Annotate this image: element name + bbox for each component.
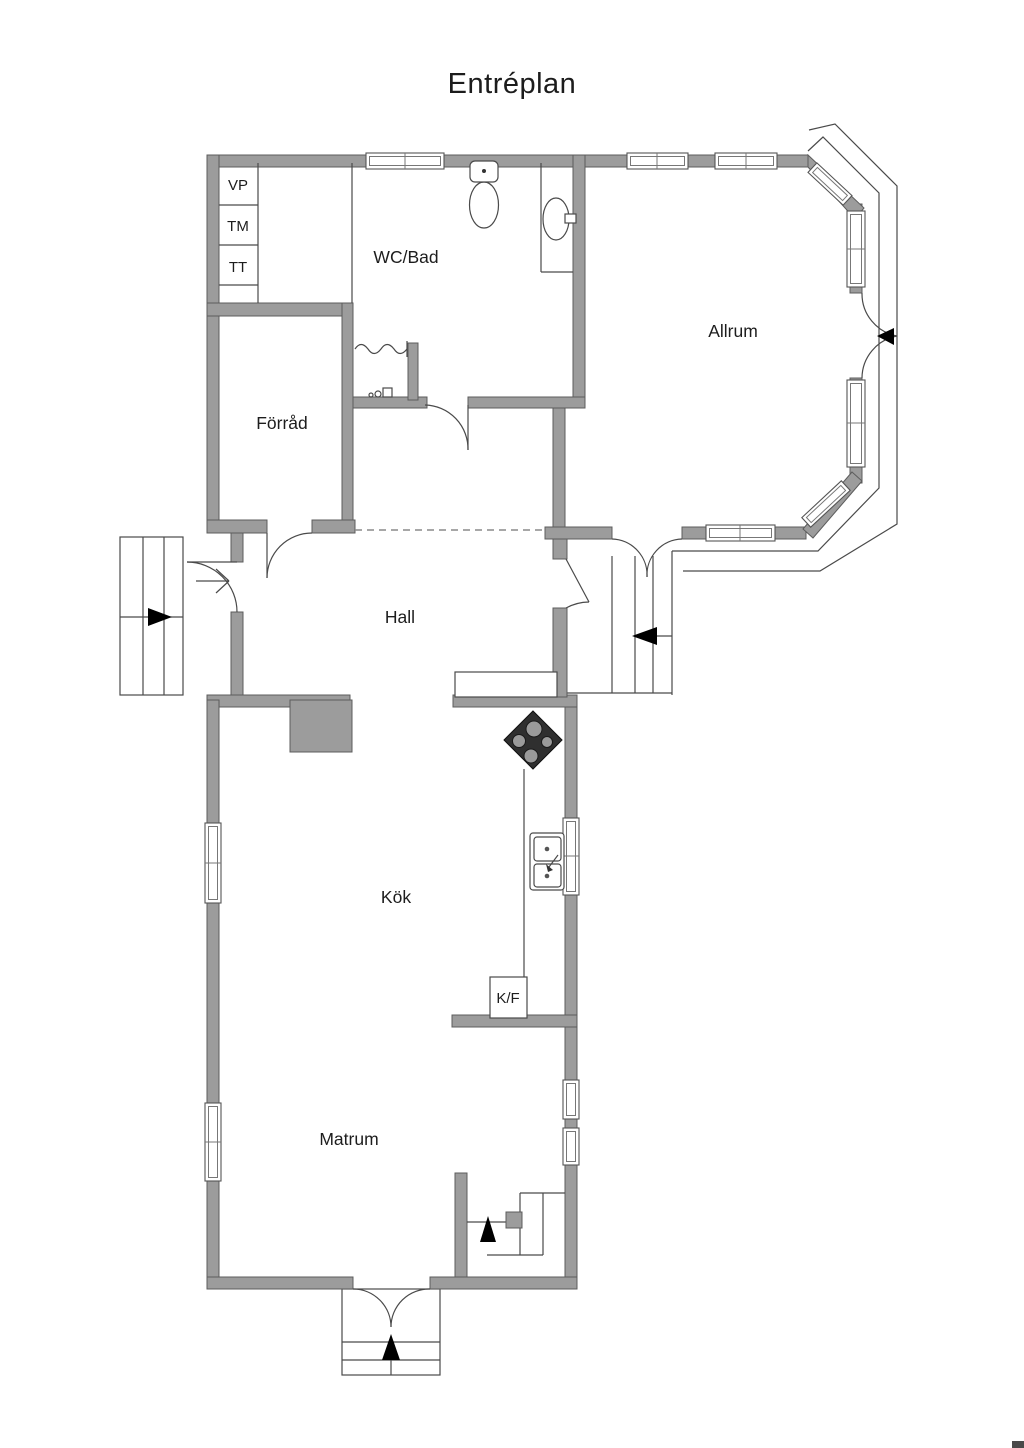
stair-up-arrow (480, 1216, 496, 1242)
window-top-allrum-2 (715, 153, 777, 169)
door-wcbad (425, 405, 468, 450)
window-bay-east-upper (847, 211, 865, 287)
wall-hall-west-upper (231, 533, 243, 562)
shower-curtain (355, 345, 407, 354)
wall-allrum-bottom-b (682, 527, 708, 539)
label-wcbad: WC/Bad (373, 247, 438, 267)
label-vp: VP (228, 177, 248, 194)
wall-left-lower (207, 700, 219, 1289)
floorplan-drawing: VP TM TT WC/Bad Allrum Förråd Hall Kök K… (0, 0, 1024, 1448)
window-matrum-east-1 (563, 1080, 579, 1119)
wall-matrum-east-c (565, 1163, 577, 1277)
label-kf: K/F (496, 990, 519, 1007)
wall-forrad-top (207, 303, 353, 316)
floorplan-page: Entréplan (0, 0, 1024, 1448)
wall-forrad-right (342, 303, 353, 533)
window-kok-east (563, 818, 579, 895)
label-tm: TM (227, 218, 249, 235)
stove (504, 711, 562, 769)
door-hall-east (566, 559, 589, 608)
window-bay-diagonal-ne (808, 163, 852, 205)
toilet (470, 161, 499, 228)
fixtures (355, 161, 576, 1255)
wall-left-upper (207, 155, 219, 527)
door-front-west (187, 562, 237, 612)
window-top-wcbad (366, 153, 444, 169)
wall-wcbad-bottom (468, 397, 585, 408)
east-porch-steps (567, 551, 672, 695)
window-bay-east-lower (847, 380, 865, 467)
wall-allrum-bottom-a (545, 527, 612, 539)
steps-up-arrow-south (382, 1334, 400, 1360)
wall-bottom-left (207, 1277, 353, 1289)
partitions (219, 163, 573, 530)
window-top-allrum-1 (627, 153, 688, 169)
wall-kok-east-upper (565, 707, 577, 820)
wash-basin (543, 198, 576, 240)
label-tt: TT (229, 259, 247, 276)
wall-bottom-right (430, 1277, 577, 1289)
kitchen-sink (530, 833, 564, 890)
wall-allrum-west-lower (553, 408, 565, 527)
wall-forrad-bottom-left (207, 520, 267, 533)
window-allrum-bottom (706, 525, 775, 541)
label-kok: Kök (381, 887, 411, 907)
chimney-block (290, 700, 352, 752)
label-allrum: Allrum (708, 321, 758, 341)
entry-direction-arrow-west (148, 608, 172, 626)
window-matrum-west (205, 1103, 221, 1181)
wall-hall-west-lower (231, 612, 243, 700)
deck-outline (672, 124, 897, 571)
wall-kok-east-lower (565, 893, 577, 1017)
wall-stair-stub (455, 1173, 467, 1277)
window-matrum-east-2 (563, 1128, 579, 1165)
label-forrad: Förråd (256, 413, 308, 433)
entry-direction-arrow-east (632, 627, 657, 645)
shower (355, 341, 407, 397)
basement-stair (467, 1193, 565, 1255)
label-hall: Hall (385, 607, 415, 627)
entrance-arrow-icon (196, 569, 229, 593)
wall-hall-east-upper (553, 539, 567, 559)
page-title: Entréplan (0, 68, 1024, 101)
wall-matrum-east-a (565, 1027, 577, 1082)
hall-bench (455, 672, 557, 697)
corner-watermark (1012, 1441, 1024, 1448)
door-forrad (267, 533, 312, 578)
doors (187, 293, 897, 1327)
window-kok-west (205, 823, 221, 903)
wall-forrad-bottom-right (312, 520, 355, 533)
door-matrum-south-double (353, 1289, 430, 1327)
wall-allrum-bottom-c (773, 527, 806, 539)
south-outdoor-steps (342, 1289, 440, 1375)
west-outdoor-stair (120, 537, 183, 695)
wall-shower-right (408, 343, 418, 400)
label-matrum: Matrum (319, 1129, 378, 1149)
wall-wcbad-east (573, 155, 585, 407)
stair-newel (506, 1212, 522, 1228)
